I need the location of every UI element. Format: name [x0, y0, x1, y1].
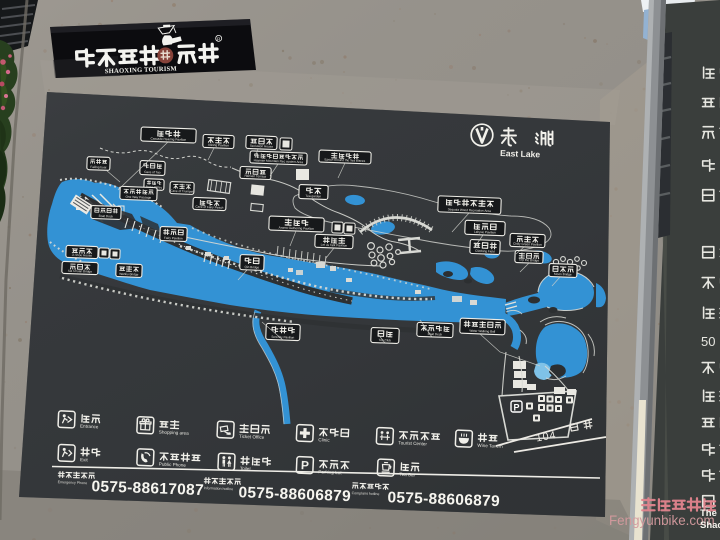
svg-text:Asking Pavilion: Asking Pavilion — [208, 143, 229, 148]
svg-text:Tea garden: Tea garden — [306, 194, 322, 199]
svg-text:Tea Club: Tea Club — [379, 338, 392, 342]
svg-text:50: 50 — [701, 334, 715, 349]
svg-text:Hansen Terrace: Hansen Terrace — [244, 174, 266, 179]
svg-text:Climbing Field: Climbing Field — [475, 249, 495, 254]
svg-text:The: The — [700, 508, 717, 519]
svg-text:Fengyunbike.com: Fengyunbike.com — [609, 513, 715, 528]
svg-text:Boat Dock: Boat Dock — [99, 214, 114, 219]
svg-text:Fairy Pavilion: Fairy Pavilion — [164, 236, 183, 241]
svg-text:P: P — [301, 458, 310, 472]
svg-text:Lahyue Pavilion: Lahyue Pavilion — [474, 230, 496, 235]
svg-text:Qin Bridge: Qin Bridge — [244, 265, 259, 270]
svg-text:Entrance: Entrance — [80, 424, 99, 430]
svg-text:Moon Bridge: Moon Bridge — [554, 272, 572, 277]
svg-text:Shac: Shac — [700, 520, 720, 531]
svg-text:Trip the Bridge: Trip the Bridge — [519, 258, 540, 263]
svg-text:Ji-Shou House: Ji-Shou House — [72, 253, 93, 258]
svg-text:Cave of Tao: Cave of Tao — [144, 170, 161, 175]
svg-text:Wanliu Bridge: Wanliu Bridge — [119, 272, 139, 277]
svg-text:East Lake: East Lake — [500, 148, 541, 159]
svg-text:Clinic: Clinic — [318, 437, 330, 443]
svg-text:P: P — [513, 403, 519, 413]
svg-text:Exit: Exit — [80, 457, 89, 462]
svg-text:Failing boat: Failing boat — [90, 165, 106, 170]
